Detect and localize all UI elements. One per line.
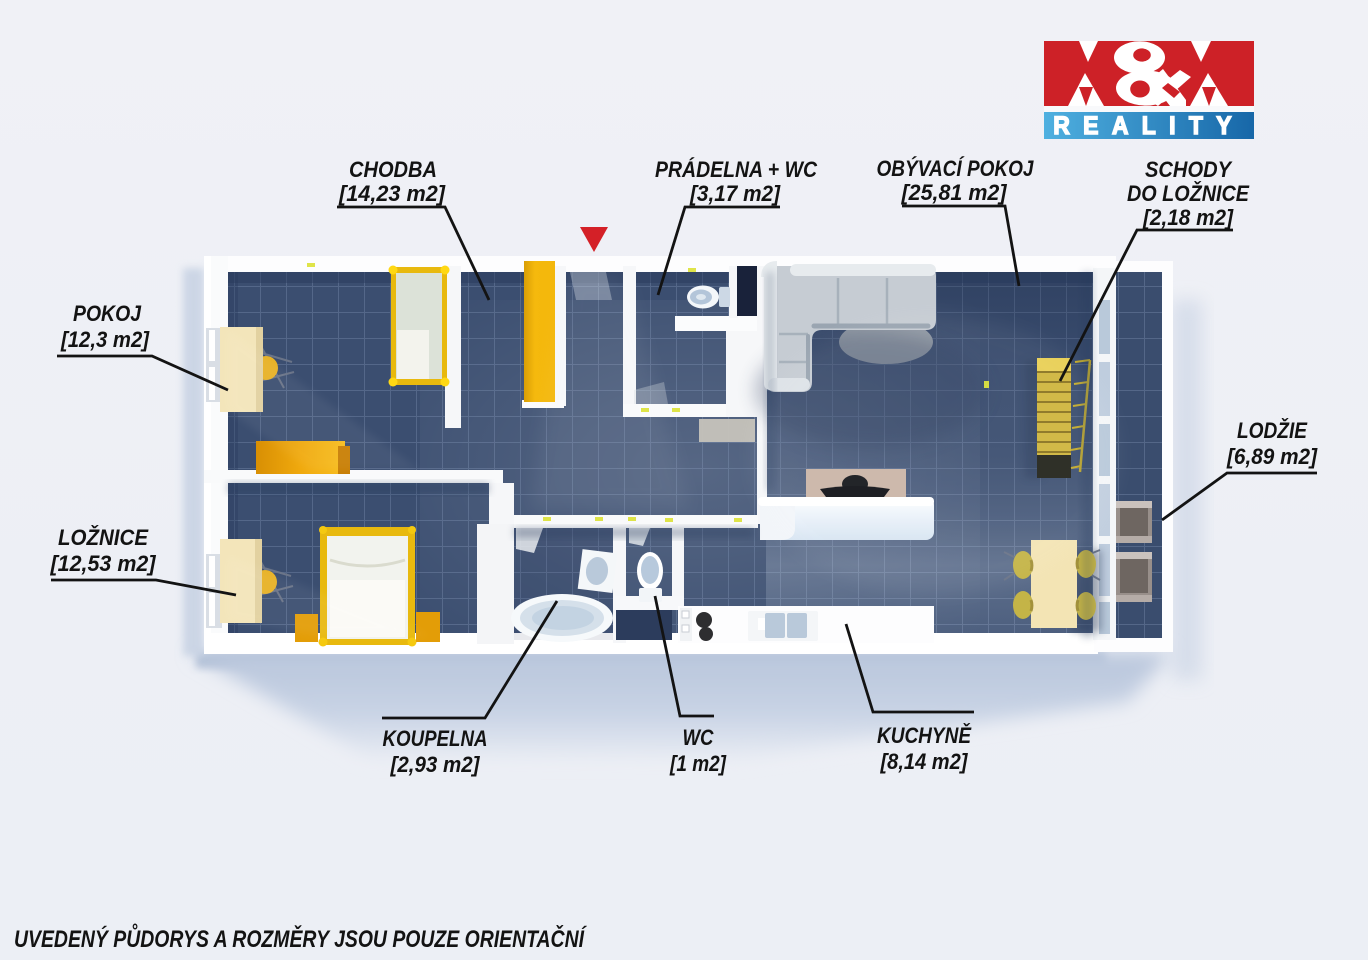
svg-text:[3,17 m2]: [3,17 m2]	[689, 181, 781, 206]
svg-text:[25,81 m2]: [25,81 m2]	[901, 180, 1008, 205]
svg-text:PRÁDELNA + WC: PRÁDELNA + WC	[655, 157, 818, 182]
svg-text:KUCHYNĚ: KUCHYNĚ	[877, 723, 972, 748]
svg-text:LOŽNICE: LOŽNICE	[58, 525, 149, 550]
svg-text:UVEDENÝ PŮDORYS A ROZMĚRY JSOU: UVEDENÝ PŮDORYS A ROZMĚRY JSOU POUZE ORI…	[14, 923, 587, 953]
svg-text:[2,18 m2]: [2,18 m2]	[1142, 205, 1234, 230]
svg-text:CHODBA: CHODBA	[349, 157, 437, 182]
svg-text:[12,53 m2]: [12,53 m2]	[50, 551, 157, 576]
svg-text:[12,3 m2]: [12,3 m2]	[60, 327, 150, 352]
svg-text:[2,93 m2]: [2,93 m2]	[390, 752, 481, 777]
svg-text:WC: WC	[683, 725, 715, 750]
svg-text:[6,89 m2]: [6,89 m2]	[1226, 444, 1318, 469]
svg-text:SCHODY: SCHODY	[1145, 157, 1233, 182]
svg-text:[1 m2]: [1 m2]	[669, 751, 726, 776]
svg-text:POKOJ: POKOJ	[73, 301, 142, 326]
svg-text:REALITY: REALITY	[1053, 112, 1245, 140]
svg-text:DO LOŽNICE: DO LOŽNICE	[1127, 181, 1250, 206]
svg-text:[8,14 m2]: [8,14 m2]	[880, 749, 969, 774]
svg-text:LODŽIE: LODŽIE	[1237, 418, 1308, 443]
svg-text:[14,23 m2]: [14,23 m2]	[338, 181, 446, 206]
svg-text:OBÝVACÍ POKOJ: OBÝVACÍ POKOJ	[877, 156, 1035, 181]
svg-text:KOUPELNA: KOUPELNA	[383, 726, 488, 751]
